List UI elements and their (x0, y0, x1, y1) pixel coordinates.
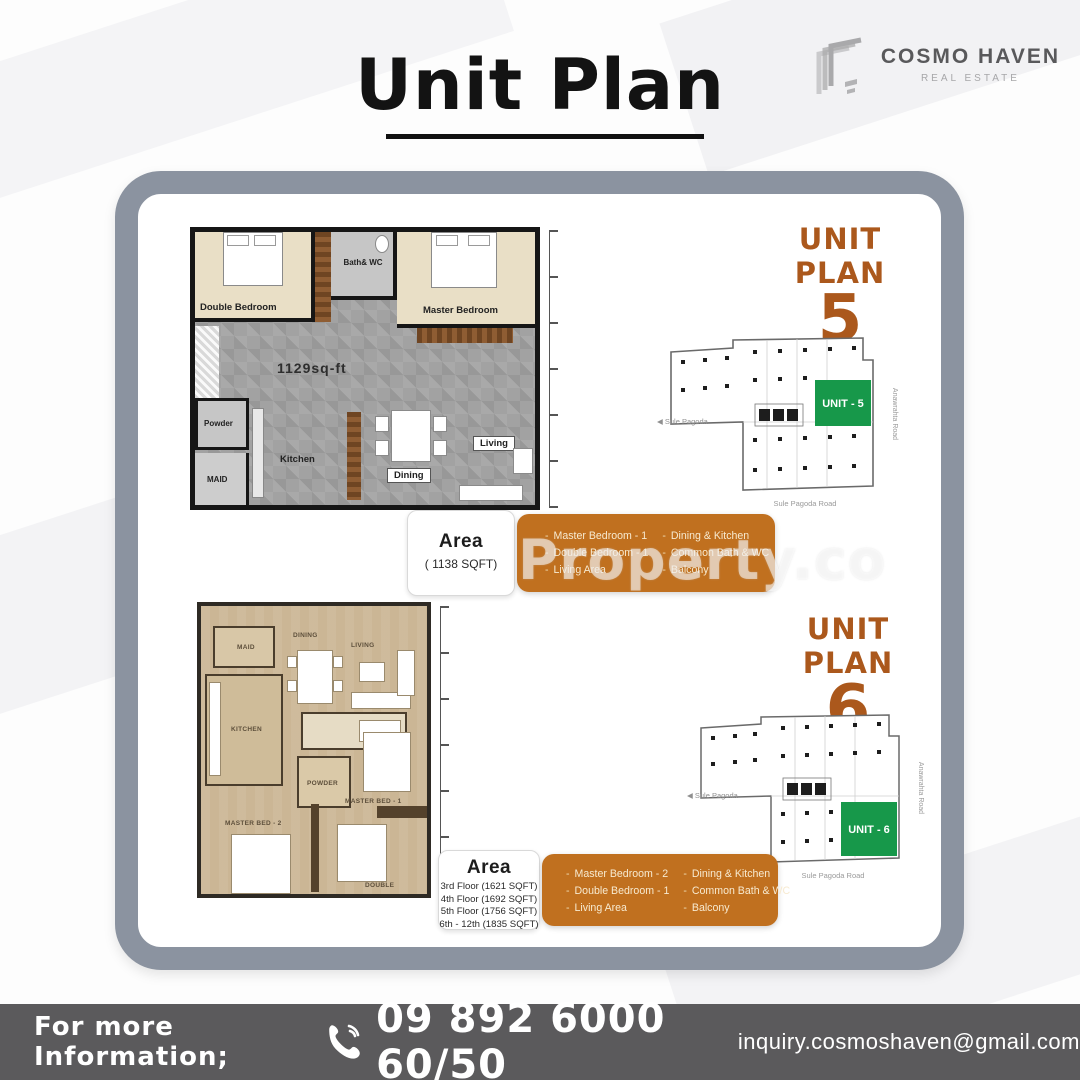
unit6-features-col1: Master Bedroom - 2 Double Bedroom - 1 Li… (566, 866, 669, 926)
room-master-bedroom: Master Bedroom (397, 232, 535, 328)
road-label-right: Anawrahta Road (917, 762, 924, 814)
dimension-line (549, 230, 558, 508)
unit5-features-col2: Dining & Kitchen Common Bath & WC Balcon… (662, 528, 769, 592)
dining-table (297, 650, 333, 704)
wardrobe-strip (315, 232, 331, 322)
armchair (513, 448, 533, 474)
road-label-left: ◀ Sule Pagoda (687, 791, 739, 800)
feature-item: Living Area (566, 900, 669, 917)
brand-tagline: REAL ESTATE (921, 73, 1020, 84)
sofa (459, 485, 523, 501)
feature-item: Balcony (683, 900, 790, 917)
brand-logo: COSMO HAVEN REAL ESTATE (805, 24, 1060, 105)
footer-phone: 09 892 6000 60/50 (376, 996, 712, 1080)
flyer-canvas: Unit Plan COSMO HAVEN REAL ESTATE UNIT P… (0, 0, 1080, 1080)
room-maid: MAID (195, 453, 249, 505)
unit5-site-plan: UNIT - 5 ◀ Sule Pagoda Anawrahta Road Su… (655, 322, 920, 522)
road-label-bottom: Sule Pagoda Road (802, 871, 865, 880)
sofa (397, 650, 415, 696)
unit6-highlight-label: UNIT - 6 (848, 824, 890, 836)
room-powder: Powder (195, 398, 249, 450)
feature-item: Master Bedroom - 2 (566, 866, 669, 883)
floor-item: 4th Floor (1692 SQFT) (439, 894, 539, 907)
feature-item: Balcony (662, 562, 769, 579)
unit6-title: UNIT PLAN (768, 612, 928, 680)
unit5-area-row: Area ( 1138 SQFT) Master Bedroom - 1 Dou… (407, 510, 775, 596)
unit6-floors-list: 3rd Floor (1621 SQFT) 4th Floor (1692 SQ… (439, 881, 539, 931)
coffee-table (359, 662, 385, 682)
footer-email: inquiry.cosmoshaven@gmail.com (738, 1029, 1080, 1055)
footer-info-label: For more Information; (34, 1012, 300, 1072)
unit6-floor-plan: LIVING DINING MAID KITCHEN POWDER MASTER… (197, 602, 431, 898)
unit5-area-value: ( 1138 SQFT) (408, 557, 514, 571)
wardrobe-strip (377, 806, 427, 818)
building-logo-icon (805, 24, 871, 105)
title-underline (386, 134, 704, 139)
unit5-features-col1: Master Bedroom - 1 Double Bedroom - 1 Li… (545, 528, 648, 592)
bed (363, 732, 411, 792)
toilet (375, 235, 389, 253)
room-living: Living (457, 408, 535, 505)
room-maid: MAID (213, 626, 275, 668)
unit5-sqft-label: 1129sq-ft (277, 360, 347, 376)
bed (231, 834, 291, 894)
unit6-area-box: Area 3rd Floor (1621 SQFT) 4th Floor (16… (438, 850, 540, 930)
feature-item: Dining & Kitchen (683, 866, 790, 883)
road-label-bottom: Sule Pagoda Road (774, 499, 837, 508)
phone-icon (322, 1019, 364, 1066)
kitchen-island (347, 412, 361, 500)
brand-name: COSMO HAVEN (881, 45, 1060, 69)
feature-item: Living Area (545, 562, 648, 579)
unit5-floor-plan: Double Bedroom Bath& WC Master Bedroom 1… (190, 227, 540, 510)
wardrobe-strip (311, 804, 319, 892)
unit6-features-box: Master Bedroom - 2 Double Bedroom - 1 Li… (542, 854, 778, 926)
feature-item: Double Bedroom - 1 (545, 545, 648, 562)
floor-item: 5th Floor (1756 SQFT) (439, 906, 539, 919)
floor-item: 6th - 12th (1835 SQFT) (439, 919, 539, 932)
unit5-area-box: Area ( 1138 SQFT) (407, 510, 515, 596)
feature-item: Common Bath & WC (683, 883, 790, 900)
unit6-features-col2: Dining & Kitchen Common Bath & WC Balcon… (683, 866, 790, 926)
kitchen-counter (209, 682, 221, 776)
room-kitchen: KITCHEN (205, 674, 283, 786)
room-powder: POWDER (297, 756, 351, 808)
feature-item: Double Bedroom - 1 (566, 883, 669, 900)
room-bath-wc: Bath& WC (331, 232, 397, 300)
feature-item: Dining & Kitchen (662, 528, 769, 545)
balcony-strip (195, 326, 219, 398)
unit5-highlight-label: UNIT - 5 (822, 398, 864, 410)
bed (431, 232, 497, 288)
unit5-features-box: Master Bedroom - 1 Double Bedroom - 1 Li… (517, 514, 775, 592)
footer-bar: For more Information; 09 892 6000 60/50 … (0, 1004, 1080, 1080)
road-label-right: Anawrahta Road (891, 388, 898, 440)
kitchen-counter (252, 408, 264, 498)
room-double-bedroom: Double Bedroom (195, 232, 315, 322)
unit6-area-row: Area 3rd Floor (1621 SQFT) 4th Floor (16… (438, 850, 778, 930)
bed (223, 232, 283, 286)
wardrobe-strip (417, 328, 513, 343)
floor-item: 3rd Floor (1621 SQFT) (439, 881, 539, 894)
feature-item: Common Bath & WC (662, 545, 769, 562)
room-kitchen: Kitchen (252, 408, 344, 505)
feature-item: Master Bedroom - 1 (545, 528, 648, 545)
bed (337, 824, 387, 882)
unit5-title: UNIT PLAN (760, 222, 920, 290)
road-label-left: ◀ Sule Pagoda (657, 417, 709, 426)
room-dining: Dining (367, 408, 455, 505)
dining-table (391, 410, 431, 462)
